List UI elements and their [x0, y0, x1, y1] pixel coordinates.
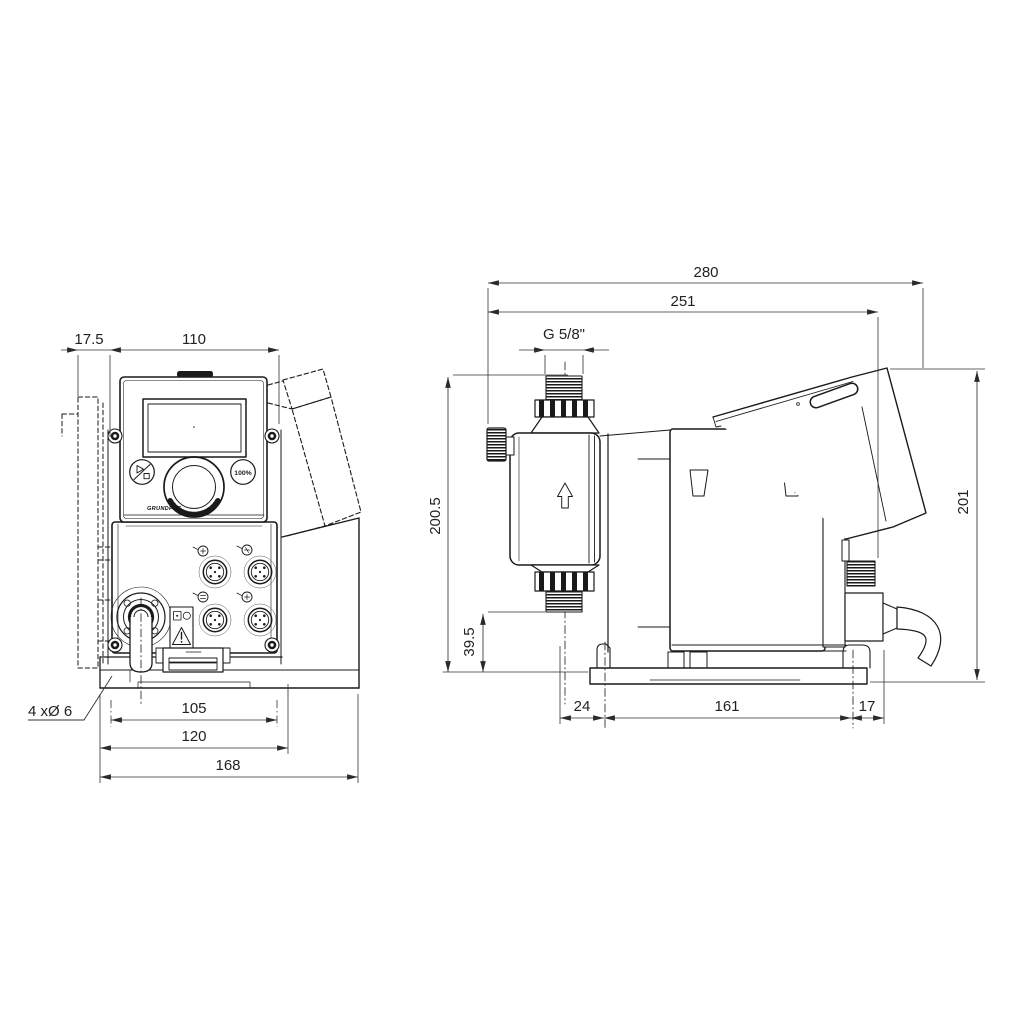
screw-icon	[265, 429, 279, 443]
technical-drawing-page: 100% GRUNDFOS	[0, 0, 1024, 1024]
dim-total-depth: 280	[693, 264, 718, 281]
dosing-head	[487, 376, 600, 612]
dim-base-hole-spacing: 161	[714, 698, 739, 715]
dim-hole-spacing: 105	[181, 700, 206, 717]
wall-plate-hidden	[62, 397, 111, 668]
motor-column	[600, 430, 670, 652]
dim-side-offset: 17.5	[74, 331, 103, 348]
base-plate-side	[590, 642, 870, 728]
cable-gland	[845, 593, 941, 666]
front-view: 100% GRUNDFOS	[62, 369, 361, 704]
warning-label	[170, 607, 193, 650]
bottom-connector-bay	[156, 648, 230, 672]
m12-connector-icon	[244, 604, 276, 636]
dim-plate-width: 120	[181, 728, 206, 745]
dim-connection-thread: G 5/8"	[543, 326, 585, 343]
side-view	[443, 362, 941, 728]
power-cable	[897, 607, 941, 666]
m12-connector-icon	[199, 604, 231, 636]
label-mounting-holes: 4 xØ 6	[28, 703, 72, 720]
dim-suction-height: 39.5	[461, 627, 478, 656]
dim-total-height: 200.5	[427, 497, 444, 535]
side-panel-edge	[282, 518, 359, 688]
top-tab	[177, 371, 213, 378]
control-panel: 100% GRUNDFOS	[120, 371, 267, 526]
dim-base-front-offset: 24	[574, 698, 591, 715]
dim-depth-without-cable: 251	[670, 293, 695, 310]
suction-valve	[531, 565, 599, 612]
m12-connector-icon	[199, 556, 231, 588]
dosing-pump-dimensional-drawing: 100% GRUNDFOS	[0, 0, 1024, 1024]
dim-housing-width: 110	[182, 331, 206, 348]
hundred-percent-label: 100%	[234, 470, 251, 477]
m12-connector-icon	[244, 556, 276, 588]
grundfos-logo: GRUNDFOS	[147, 506, 181, 512]
dim-base-rear-offset: 17	[859, 698, 876, 715]
dim-housing-height: 201	[955, 489, 972, 514]
discharge-valve	[535, 376, 594, 417]
rear-connector-stub	[842, 540, 875, 586]
dim-total-width: 168	[215, 757, 240, 774]
control-cube-hidden	[268, 369, 361, 536]
screw-icon	[108, 638, 122, 652]
screw-icon	[265, 638, 279, 652]
